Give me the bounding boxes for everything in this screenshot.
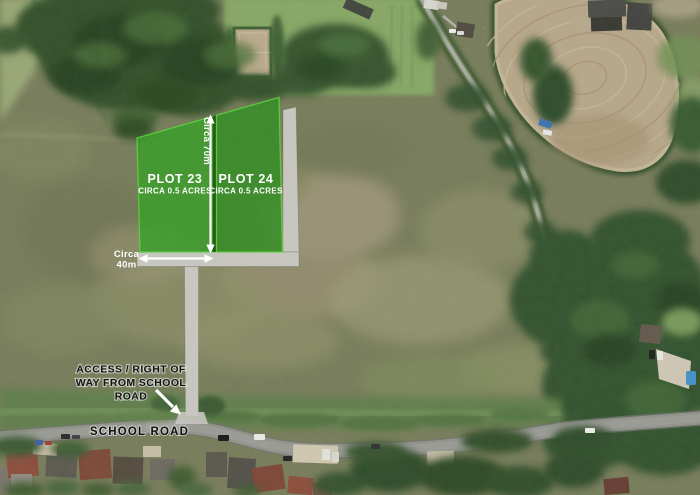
- aerial-plot-map: PLOT 23 CIRCA 0.5 ACRES PLOT 24 CIRCA 0.…: [0, 0, 700, 495]
- access-note-line1: ACCESS / RIGHT OF: [76, 364, 186, 376]
- plot-23-name: PLOT 23: [148, 172, 203, 186]
- depth-measure-label: Circa 70m: [201, 117, 212, 165]
- school-road-label: SCHOOL ROAD: [90, 426, 189, 438]
- photo-grain-coarse: [0, 0, 700, 495]
- plot-24-area: CIRCA 0.5 ACRES: [209, 187, 283, 196]
- width-measure-label-line2: 40m: [117, 260, 137, 271]
- plot-24-name: PLOT 24: [219, 172, 274, 186]
- width-measure-label-line1: Circa: [114, 249, 140, 260]
- plot-23-area: CIRCA 0.5 ACRES: [138, 187, 212, 196]
- access-note-line3: ROAD: [115, 391, 148, 403]
- access-note-line2: WAY FROM SCHOOL: [76, 377, 187, 389]
